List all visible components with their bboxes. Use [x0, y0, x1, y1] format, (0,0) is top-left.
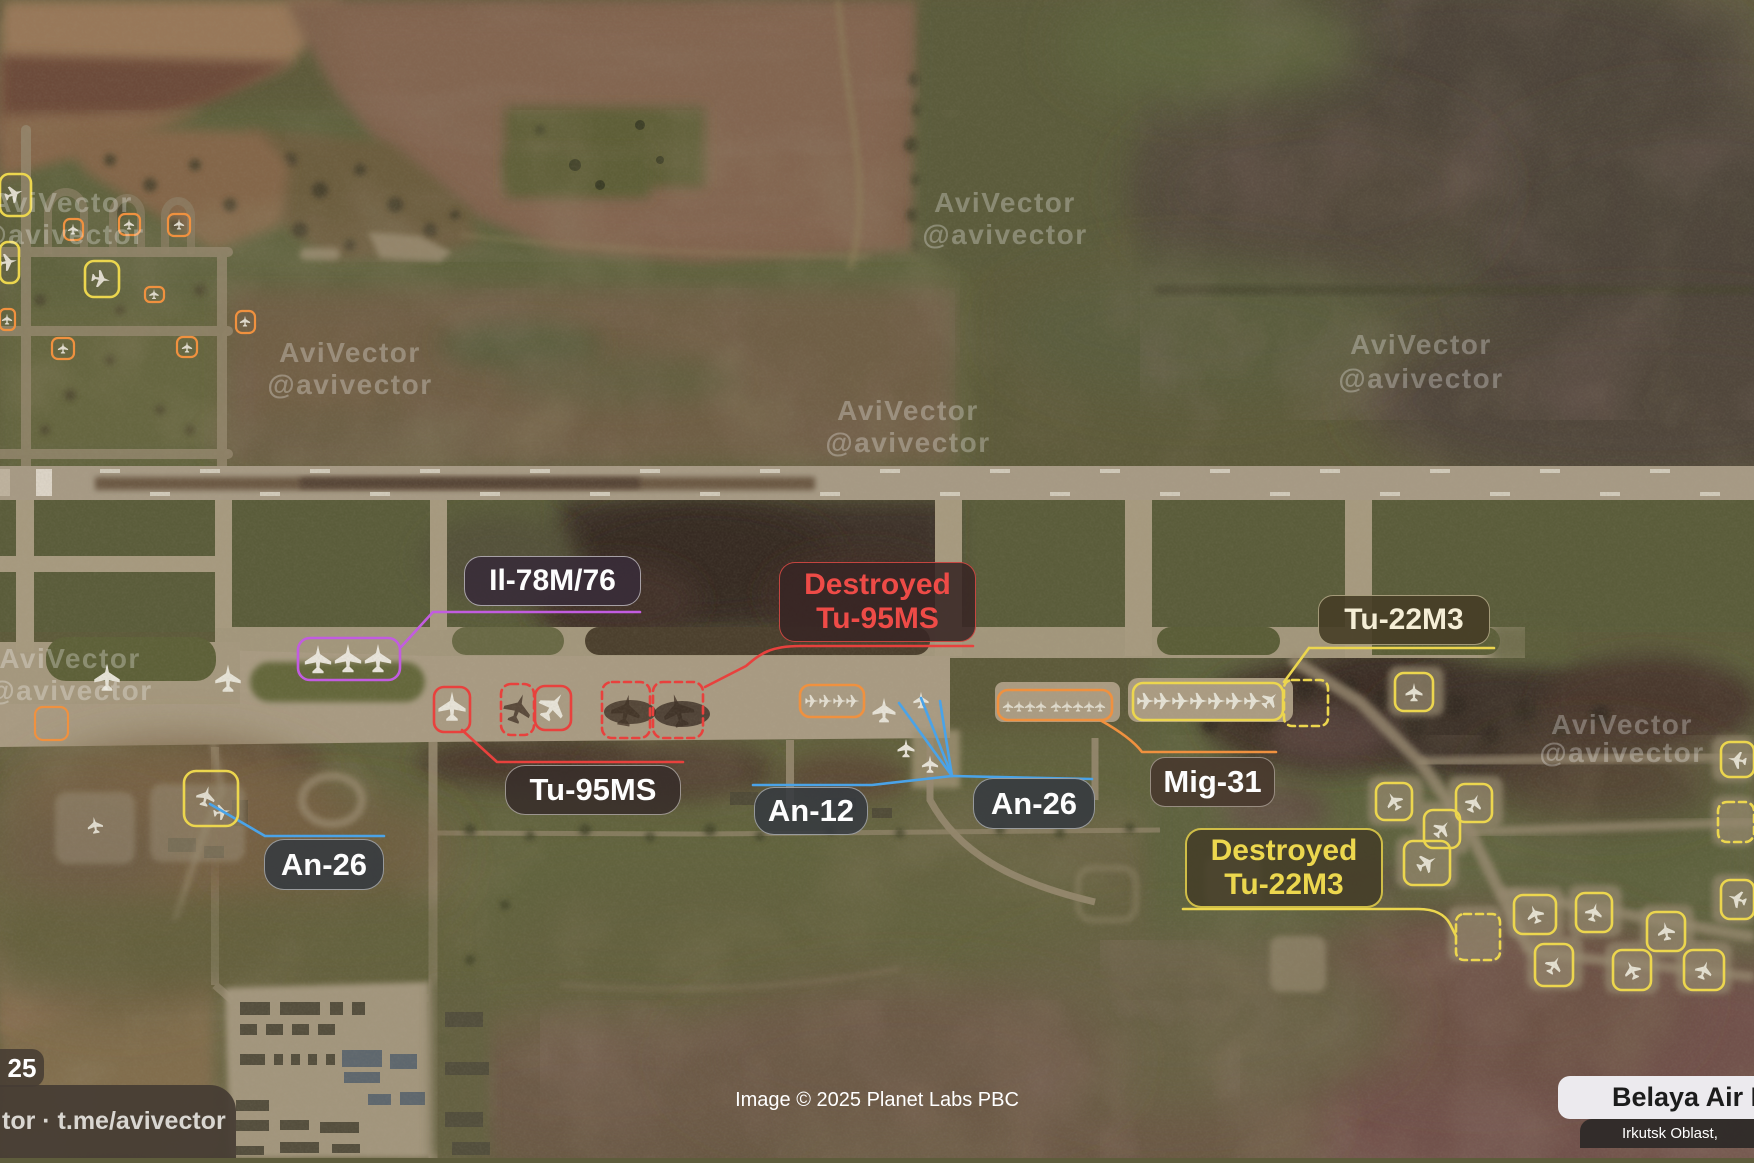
svg-text:@avivector: @avivector — [825, 427, 990, 458]
svg-text:@avivector: @avivector — [0, 675, 153, 706]
svg-text:@avivector: @avivector — [0, 219, 145, 250]
svg-text:AviVector: AviVector — [837, 395, 979, 426]
svg-text:AviVector: AviVector — [934, 187, 1076, 218]
svg-text:@avivector: @avivector — [1338, 363, 1503, 394]
svg-text:AviVector: AviVector — [1350, 329, 1492, 360]
svg-text:@avivector: @avivector — [1539, 737, 1704, 768]
svg-text:AviVector: AviVector — [0, 643, 141, 674]
svg-text:AviVector: AviVector — [279, 337, 421, 368]
svg-text:AviVector: AviVector — [1551, 709, 1693, 740]
svg-text:@avivector: @avivector — [922, 219, 1087, 250]
svg-text:AviVector: AviVector — [0, 187, 133, 218]
svg-text:@avivector: @avivector — [267, 369, 432, 400]
